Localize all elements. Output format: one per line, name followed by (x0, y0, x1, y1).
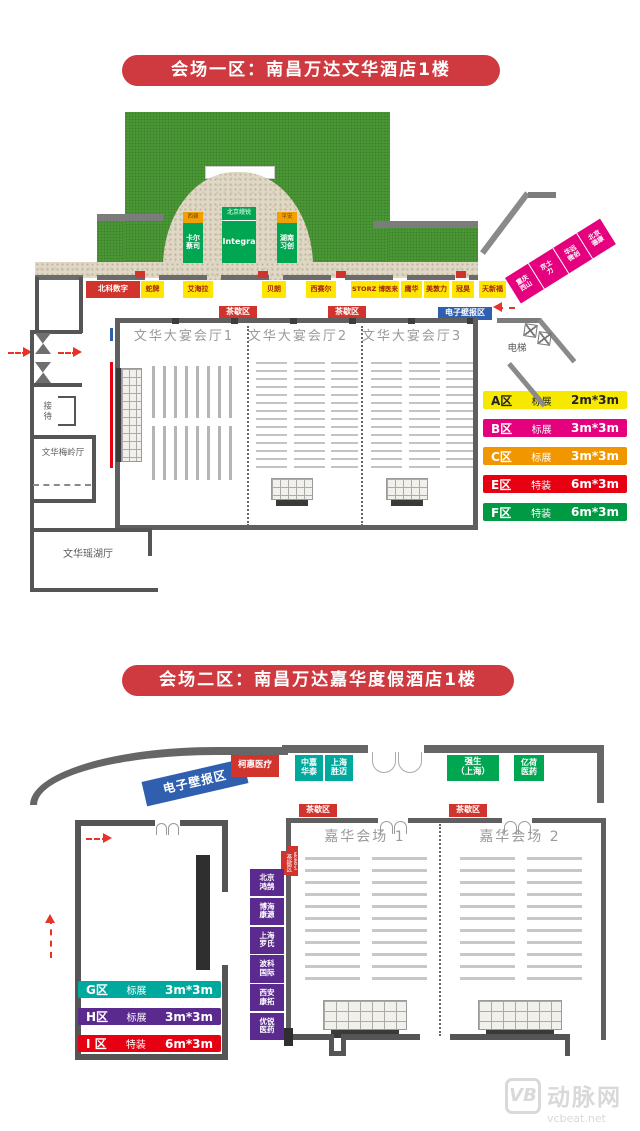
wall-accent-blue (110, 328, 113, 341)
room-wall (180, 820, 228, 826)
booth-label: STORZ 博医来 (351, 281, 399, 298)
legend-zone: A区 (491, 392, 512, 409)
door-arc-icon (156, 823, 167, 835)
lawn-right-patch (388, 228, 478, 263)
booth-label: 蛇牌 (141, 281, 164, 298)
legend-size: 2m*3m (571, 393, 619, 407)
door-marker-icon (258, 271, 268, 278)
entry-arrow-icon (50, 918, 52, 958)
elevator-shaft-icon (523, 323, 538, 338)
entry-arrow-icon (58, 352, 78, 354)
direction-arrow-icon (497, 307, 515, 309)
booth-label: 波科 国际 (250, 955, 284, 982)
lawn-left-patch (97, 221, 125, 263)
seating-rows (446, 362, 473, 470)
legend-size: 6m*3m (165, 1037, 213, 1051)
legend-zone: I 区 (86, 1035, 107, 1052)
seating-rows (371, 362, 402, 470)
room-wall (222, 965, 228, 1060)
legend-row-c: C区 标展 3m*3m (483, 447, 627, 465)
door-icon (35, 362, 51, 383)
booth-label: 博海 康源 (250, 898, 284, 925)
booth-label: 强生 （上海） (447, 755, 499, 781)
left-booth-column: 北京 鸿鹄 博海 康源 上海 罗氏 波科 国际 西安 康拓 优锐 医药 (250, 869, 284, 1040)
legend-size: 3m*3m (571, 449, 619, 463)
legend-type: 标展 (127, 1009, 147, 1024)
door-marker-icon (336, 271, 346, 278)
door-marker-icon (456, 271, 466, 278)
vcbeat-logo-icon: VB (505, 1078, 541, 1114)
room-wall (148, 528, 152, 556)
hall-name: 文华大宴会厅3 (356, 328, 468, 346)
legend-row-a: A区 标展 2m*3m (483, 391, 627, 409)
door-bracket (58, 396, 76, 426)
legend-row-e: E区 特装 6m*3m (483, 475, 627, 493)
legend-type: 特装 (531, 477, 551, 492)
legend-row-f: F区 特装 6m*3m (483, 503, 627, 521)
entry-arrow-icon (86, 838, 108, 840)
stage-front-bar (276, 500, 308, 506)
gate-sign: 西顿 卡尔 蔡司 (183, 212, 203, 263)
watermark-site: vcbeat.net (547, 1112, 622, 1125)
booth-label: 中嘉 华泰 (295, 755, 323, 781)
booth-label: 西安 康拓 (250, 984, 284, 1011)
elevator-wall (497, 318, 541, 323)
diagonal-booth-strip: 重庆 西山 京士 力 华远 微创 北京 德康 (505, 219, 616, 304)
gate-sign-name: Integra (222, 220, 256, 263)
partition-dashed-line (33, 484, 91, 486)
legend-size: 3m*3m (165, 983, 213, 997)
stage-grid (323, 1000, 407, 1030)
room-wall (30, 383, 82, 387)
gate-sign-header: 平安 (277, 212, 297, 223)
legend-size: 3m*3m (165, 1010, 213, 1024)
booth-label: 优锐 医药 (250, 1013, 284, 1040)
seating-rows (372, 857, 427, 989)
legend-zone: C区 (491, 448, 512, 465)
booth-label: 上海 罗氏 (250, 927, 284, 954)
legend-row-h: H区 标展 3m*3m (78, 1008, 221, 1025)
legend-type: 特装 (126, 1036, 146, 1051)
floor-plan-page: 会场一区：南昌万达文华酒店1楼 西顿 卡尔 蔡司 北京缦锐 Integra 平安… (0, 0, 640, 1131)
booth-label: 美敦力 (424, 281, 449, 298)
tea-break-label: 茶歇区 (299, 804, 337, 817)
stage-grid (386, 478, 428, 500)
tea-break-label: 茶歇区 (449, 804, 487, 817)
room-wall (30, 435, 96, 439)
elevator-shaft-icon (537, 331, 552, 346)
entry-arrow-icon (8, 352, 28, 354)
walkway-wall (35, 275, 478, 280)
hall-name: 嘉华会场 2 (455, 828, 585, 848)
venue2-title: 会场二区：南昌万达嘉华度假酒店1楼 (122, 665, 514, 696)
legend-zone: E区 (491, 476, 511, 493)
seating-rows (294, 362, 325, 470)
gate-sign-header: 北京缦锐 (222, 207, 256, 220)
seating-rows (152, 426, 240, 480)
door-leaf-icon (398, 752, 422, 773)
wall-notch (284, 1028, 293, 1046)
booth-label: 上海 胜迈 (325, 755, 353, 781)
bottom-wall-step (565, 1034, 570, 1056)
hall-name: 嘉华会场 1 (300, 828, 430, 848)
garden-wall-left (97, 214, 163, 221)
booth-label: 亿荷 医药 (514, 755, 544, 781)
legend-row-i: I 区 特装 6m*3m (78, 1035, 221, 1052)
seating-rows (527, 857, 582, 989)
gate-sign-name: 卡尔 蔡司 (183, 223, 203, 263)
legend-size: 3m*3m (571, 421, 619, 435)
hall-name: 文华大宴会厅1 (128, 328, 240, 346)
garden-wall-right (373, 221, 478, 228)
thick-partition-wall (196, 855, 210, 970)
stage-grid (478, 1000, 562, 1030)
door-marker-icon (135, 271, 145, 278)
hall-divider (361, 326, 363, 526)
reception-label: 接待 (38, 390, 54, 432)
seating-rows (409, 362, 440, 470)
legend-zone: B区 (491, 420, 512, 437)
booth-label: 北京 鸿鹄 (250, 869, 284, 896)
room-wall (30, 528, 152, 532)
door-arc-icon (168, 823, 179, 835)
stage-front-bar (391, 500, 423, 506)
legend-size: 6m*3m (571, 477, 619, 491)
hall-name: 文华大宴会厅2 (242, 328, 354, 346)
seating-rows (256, 362, 287, 470)
elevator-label: 电梯 (501, 342, 533, 356)
legend-zone: H区 (86, 1008, 108, 1025)
legend-zone: F区 (491, 504, 511, 521)
yaohu-room-label: 文华瑶湖厅 (50, 548, 126, 562)
room-wall (30, 588, 158, 592)
booth-label: 西赛尔 (306, 281, 336, 298)
wall-accent-red (110, 362, 113, 468)
hall-divider (247, 326, 249, 526)
stage-grid (121, 368, 142, 462)
right-wall (597, 751, 604, 803)
gate-sign: 平安 湖南 习创 (277, 212, 297, 263)
legend-size: 6m*3m (571, 505, 619, 519)
seating-rows (331, 362, 358, 470)
legend-row-g: G区 标展 3m*3m (78, 981, 221, 998)
diagonal-wall (480, 191, 530, 255)
hall-divider (439, 824, 441, 1036)
stage-grid (271, 478, 313, 500)
venue1-title: 会场一区：南昌万达文华酒店1楼 (122, 55, 500, 86)
corridor-wall (79, 277, 83, 333)
booth-label: 鹰华 (401, 281, 422, 298)
booth-label: 北科数字 (86, 281, 140, 298)
top-wall (282, 745, 604, 753)
bottom-wall (289, 1034, 333, 1040)
corridor-wall (35, 277, 39, 333)
seating-rows (152, 366, 240, 418)
room-wall (222, 820, 228, 892)
wall-stub (528, 192, 556, 198)
seating-rows (305, 857, 360, 989)
gate-sign: 北京缦锐 Integra (222, 207, 256, 265)
room-wall (92, 435, 96, 501)
gate-sign-header: 西顿 (183, 212, 203, 223)
gate-sign-name: 湖南 习创 (277, 223, 297, 263)
booth-label: 艾海拉 (183, 281, 213, 298)
bottom-wall (346, 1034, 420, 1040)
legend-type: 标展 (531, 449, 551, 464)
legend-type: 特装 (531, 505, 551, 520)
booth-label: 冠昊 (452, 281, 474, 298)
door-leaf-icon (372, 752, 396, 773)
room-wall (30, 499, 96, 503)
legend-zone: G区 (86, 981, 108, 998)
seating-rows (460, 857, 515, 989)
watermark: VB 动脉网 vcbeat.net (505, 1078, 622, 1125)
wall-posts (120, 318, 473, 324)
meiling-room-label: 文华梅岭厅 (34, 447, 92, 460)
bottom-wall (450, 1034, 570, 1040)
legend-type: 标展 (532, 421, 552, 436)
room-wall (75, 1054, 228, 1060)
legend-type: 标展 (126, 982, 146, 997)
legend-row-b: B区 标展 3m*3m (483, 419, 627, 437)
room-wall (75, 820, 155, 826)
booth-label: 天新福 (479, 281, 506, 298)
room-wall (30, 330, 34, 592)
watermark-name: 动脉网 (547, 1078, 622, 1112)
door-icon (35, 333, 51, 354)
booth-label: 柯惠医疗 (231, 755, 279, 777)
booth-label: 贝朗 (262, 281, 286, 298)
